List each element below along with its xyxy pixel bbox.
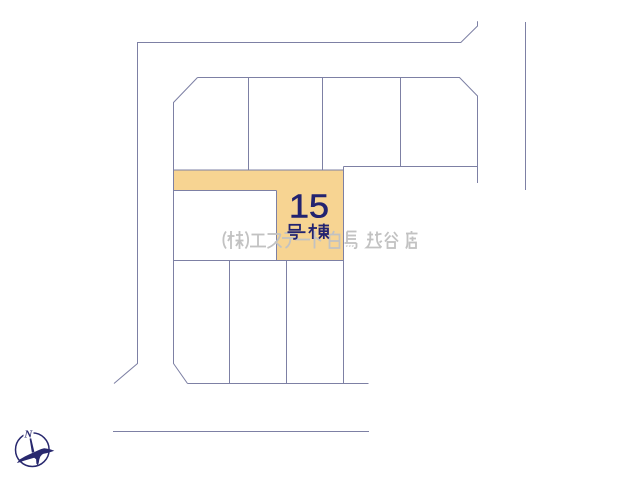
svg-text:15: 15	[289, 188, 329, 225]
svg-text:N: N	[23, 428, 33, 440]
